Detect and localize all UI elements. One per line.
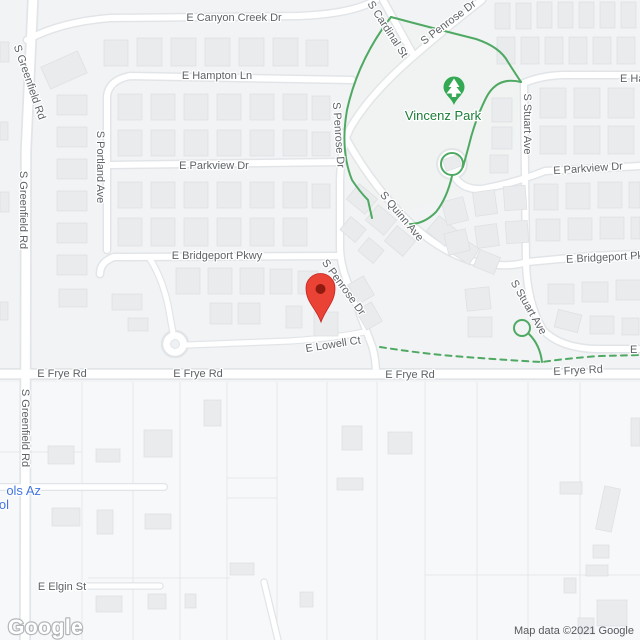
street-label-frye-2: E Frye Rd (173, 368, 223, 380)
park-name-label: Vincenz Park (405, 108, 482, 123)
school-label-line2: ol (0, 497, 9, 512)
street-label-hampton-1: E Hampton Ln (182, 70, 252, 82)
street-label-frye-1: E Frye Rd (37, 368, 87, 380)
street-label-bridgeport-1: E Bridgeport Pkwy (172, 250, 263, 262)
street-label-stuart-1: S Stuart Ave (521, 94, 533, 155)
street-label-portland: S Portland Ave (94, 131, 106, 204)
street-label-east-edge-partial: E (630, 344, 637, 356)
street-label-elgin: E Elgin St (38, 581, 86, 593)
pin-center-dot (316, 284, 326, 294)
street-label-greenfield-3: S Greenfield Rd (19, 389, 31, 467)
map-tiles: E Canyon Creek Dr S Greenfield Rd S Gree… (0, 0, 640, 640)
street-label-hampton-2: E Hampton Ln (620, 73, 640, 85)
street-label-parkview-1: E Parkview Dr (179, 160, 249, 172)
street-label-greenfield-2: S Greenfield Rd (17, 171, 29, 249)
street-label-canyon-creek: E Canyon Creek Dr (186, 12, 282, 24)
school-label-line1: ols Az (6, 483, 41, 498)
map-canvas[interactable]: E Canyon Creek Dr S Greenfield Rd S Gree… (0, 0, 640, 640)
street-label-frye-3: E Frye Rd (385, 369, 435, 381)
google-logo[interactable]: Google (8, 616, 83, 639)
map-attribution: Map data ©2021 Google (514, 625, 634, 637)
